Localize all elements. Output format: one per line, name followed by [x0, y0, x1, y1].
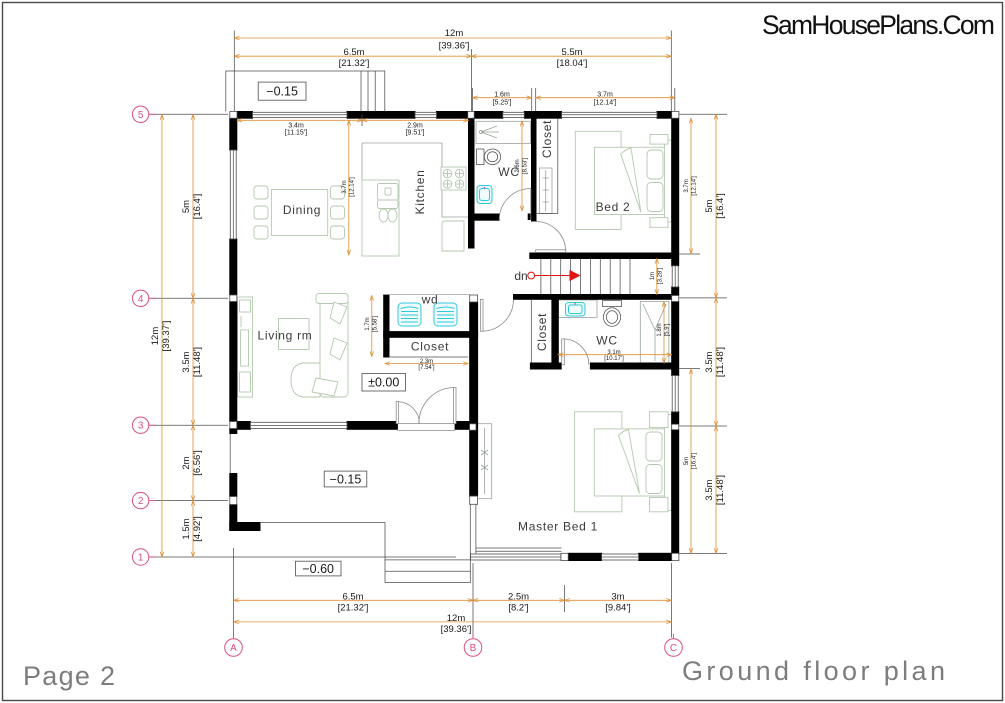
svg-text:Bed 2: Bed 2	[596, 200, 631, 214]
svg-text:[21.32']: [21.32']	[339, 58, 370, 69]
svg-text:3: 3	[138, 421, 144, 432]
svg-text:WC: WC	[498, 165, 519, 179]
svg-text:−0.15: −0.15	[266, 85, 298, 99]
svg-text:3.5m: 3.5m	[181, 351, 192, 372]
svg-text:[16.4']: [16.4']	[715, 193, 726, 219]
svg-text:3.1m: 3.1m	[607, 350, 620, 356]
svg-text:Master Bed 1: Master Bed 1	[518, 520, 598, 534]
svg-text:2.5m: 2.5m	[508, 591, 529, 602]
svg-text:Closet: Closet	[540, 120, 554, 158]
svg-text:Dining: Dining	[283, 203, 321, 217]
svg-text:[16.4']: [16.4']	[692, 453, 698, 469]
svg-text:Closet: Closet	[411, 340, 449, 354]
svg-text:[11.48']: [11.48']	[192, 347, 203, 377]
svg-text:[21.32']: [21.32']	[338, 602, 369, 613]
svg-text:5m: 5m	[181, 200, 192, 213]
svg-text:2: 2	[138, 496, 144, 507]
svg-text:−0.15: −0.15	[330, 473, 362, 487]
svg-text:[5.25']: [5.25']	[493, 100, 512, 107]
svg-text:[11.48']: [11.48']	[715, 475, 726, 505]
svg-text:[8.53']: [8.53']	[523, 158, 529, 174]
svg-text:SamHousePlans.Com: SamHousePlans.Com	[762, 10, 995, 40]
svg-text:3m: 3m	[611, 591, 624, 602]
svg-text:[12.14']: [12.14']	[594, 100, 617, 107]
svg-text:[5.58']: [5.58']	[372, 316, 378, 332]
svg-text:WC: WC	[596, 334, 617, 348]
svg-text:1m: 1m	[650, 272, 656, 280]
svg-text:A: A	[230, 643, 237, 654]
svg-text:Ground floor plan: Ground floor plan	[682, 656, 947, 686]
svg-text:1: 1	[138, 553, 144, 564]
svg-text:[10.17']: [10.17']	[604, 356, 624, 362]
svg-text:12m: 12m	[150, 327, 161, 346]
svg-text:[9.84']: [9.84']	[605, 602, 631, 613]
svg-text:[39.36']: [39.36']	[441, 624, 472, 635]
svg-text:5m: 5m	[704, 199, 715, 212]
svg-text:[12.14']: [12.14']	[692, 176, 698, 196]
svg-text:[12.14']: [12.14']	[349, 177, 355, 197]
svg-text:Kitchen: Kitchen	[413, 170, 427, 215]
svg-text:C: C	[670, 643, 677, 654]
svg-text:[11.15']: [11.15']	[285, 130, 307, 137]
svg-text:3.5m: 3.5m	[704, 351, 715, 372]
svg-text:[8.2']: [8.2']	[508, 602, 528, 613]
svg-text:12m: 12m	[447, 613, 466, 624]
svg-text:[39.36']: [39.36']	[439, 41, 470, 52]
svg-text:[3.28']: [3.28']	[657, 268, 663, 284]
svg-text:5: 5	[138, 110, 144, 121]
svg-text:6.5m: 6.5m	[343, 47, 364, 58]
svg-text:3.5m: 3.5m	[704, 479, 715, 500]
svg-text:3.4m: 3.4m	[288, 123, 304, 130]
svg-text:1.6m: 1.6m	[494, 92, 510, 99]
svg-text:[6.56']: [6.56']	[192, 450, 203, 476]
svg-text:3.7m: 3.7m	[597, 92, 613, 99]
svg-text:5.5m: 5.5m	[561, 47, 582, 58]
svg-text:[11.48']: [11.48']	[715, 347, 726, 377]
svg-text:2.9m: 2.9m	[407, 123, 423, 130]
svg-text:wd: wd	[421, 293, 439, 307]
svg-text:B: B	[470, 643, 477, 654]
svg-text:dn: dn	[514, 269, 527, 283]
svg-text:12m: 12m	[445, 28, 464, 39]
svg-text:[7.54']: [7.54']	[418, 365, 434, 371]
svg-text:[5.9']: [5.9']	[665, 323, 671, 336]
svg-text:Closet: Closet	[535, 313, 549, 351]
svg-text:−0.60: −0.60	[302, 562, 334, 576]
svg-text:[18.04']: [18.04']	[557, 58, 588, 69]
svg-text:1.5m: 1.5m	[181, 518, 192, 539]
svg-text:Living rm: Living rm	[258, 329, 313, 343]
svg-text:Page 2: Page 2	[23, 661, 118, 691]
svg-text:±0.00: ±0.00	[368, 376, 399, 390]
svg-text:1.7m: 1.7m	[365, 317, 371, 330]
svg-text:2m: 2m	[181, 456, 192, 469]
svg-text:[4.92']: [4.92']	[192, 516, 203, 542]
svg-text:[39.37']: [39.37']	[161, 321, 172, 352]
svg-text:3.7m: 3.7m	[684, 179, 690, 192]
svg-text:4: 4	[138, 294, 144, 305]
svg-text:3.7m: 3.7m	[342, 180, 348, 193]
svg-text:[9.51']: [9.51']	[406, 130, 425, 137]
svg-text:6.5m: 6.5m	[342, 591, 363, 602]
svg-text:5m: 5m	[684, 457, 690, 465]
svg-text:[16.4']: [16.4']	[192, 194, 203, 220]
svg-text:1.8m: 1.8m	[657, 323, 663, 336]
